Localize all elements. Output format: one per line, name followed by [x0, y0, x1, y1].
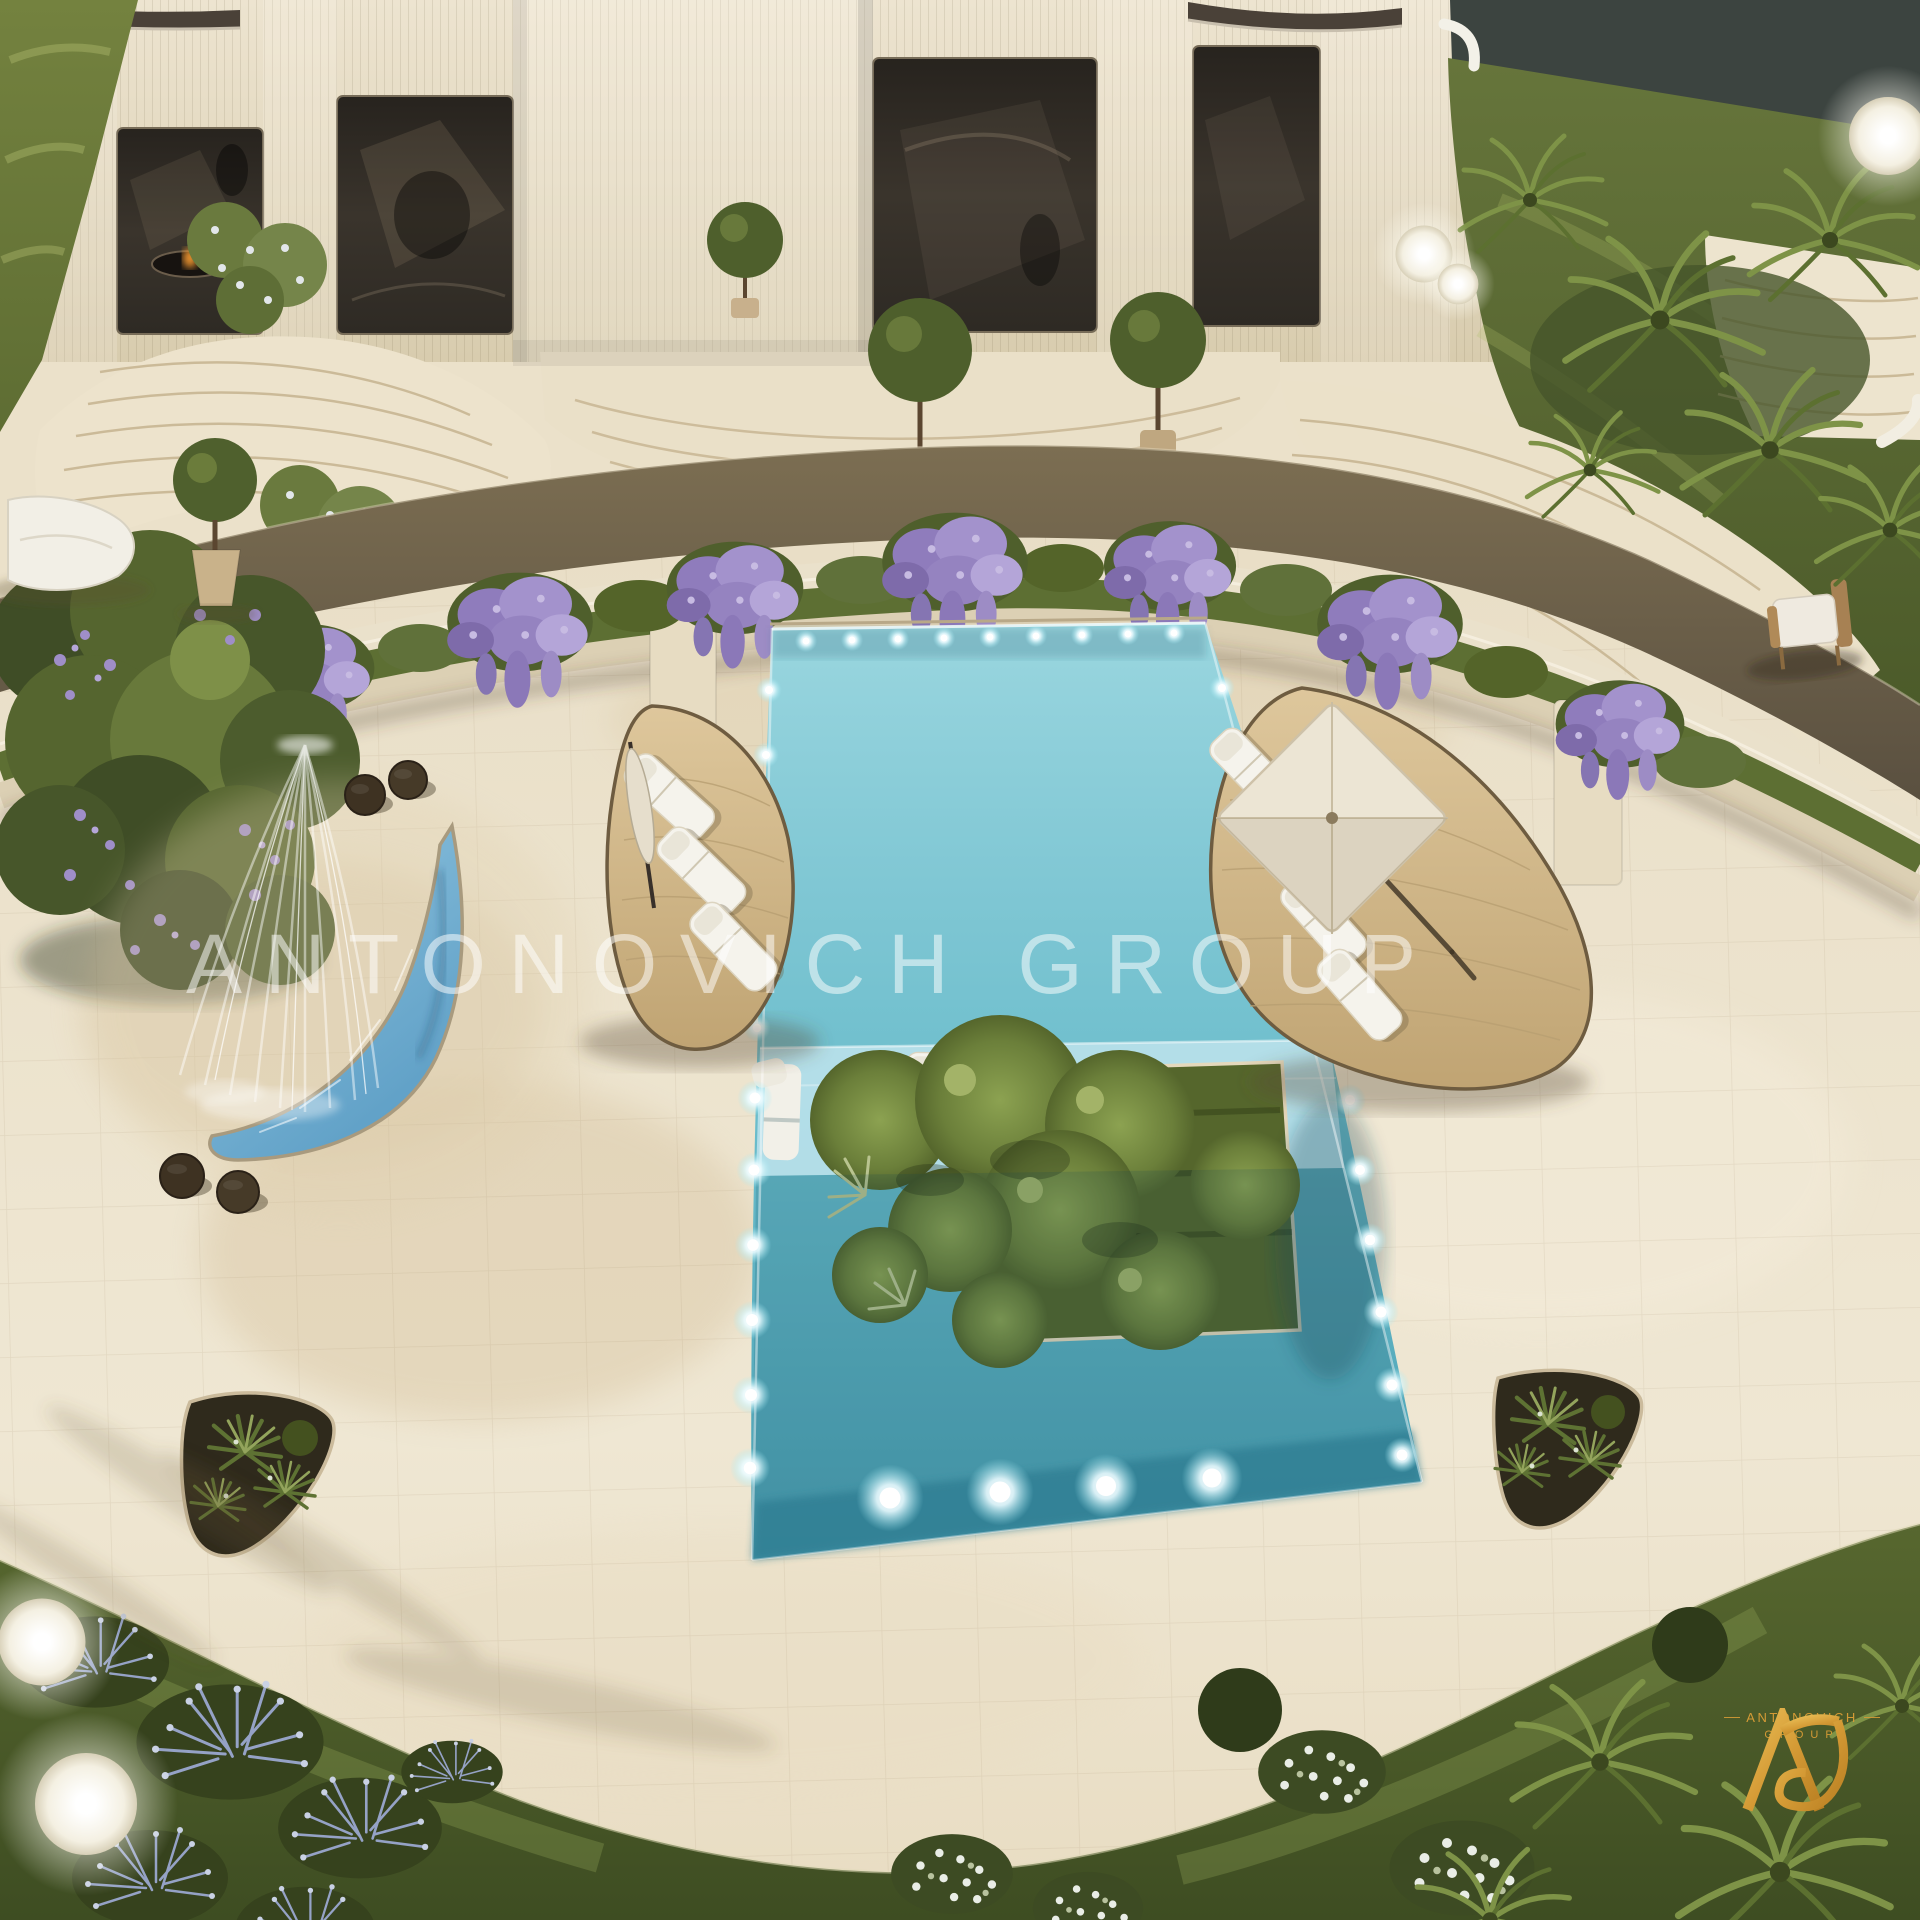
- pond-halo: [90, 780, 590, 1220]
- glass-window-4: [1193, 46, 1320, 326]
- render-canvas: ANTONOVICH GROUP AG ANTONOVICH GROUP: [0, 0, 1920, 1920]
- glass-window-3: [873, 58, 1097, 332]
- glass-window-2: [337, 96, 513, 334]
- scene-render: [0, 0, 1920, 1920]
